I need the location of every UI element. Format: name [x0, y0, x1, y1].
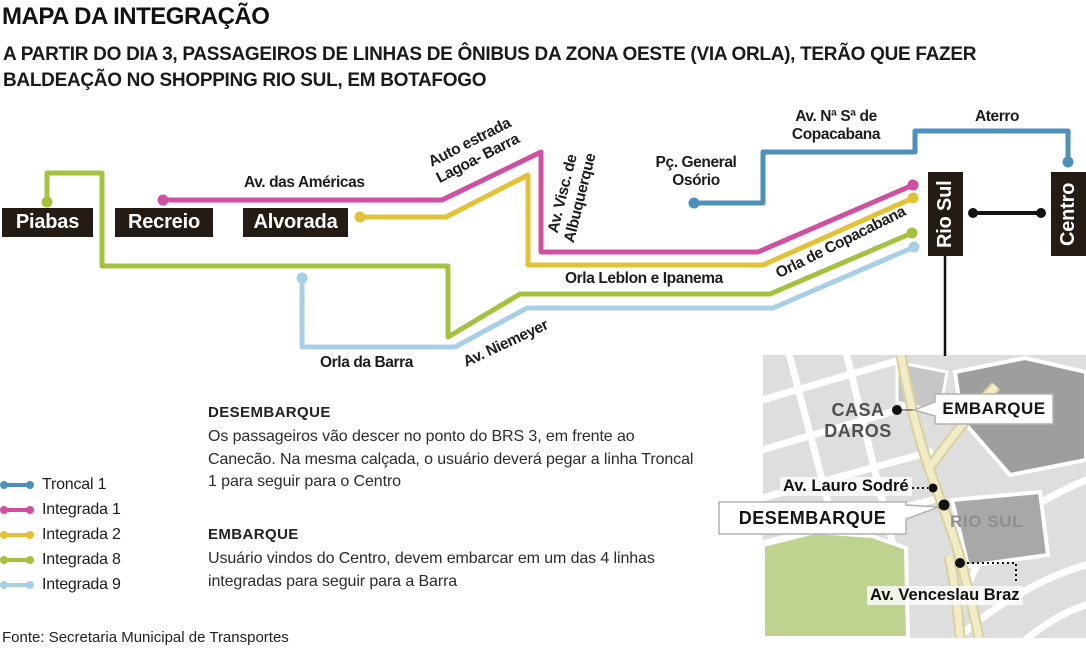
station-rio-sul: Rio Sul: [928, 172, 963, 256]
label-orla-da-barra: Orla da Barra: [320, 354, 413, 372]
map-label-av-venceslau-braz: Av. Venceslau Braz: [867, 586, 1023, 605]
route-integrada1: [163, 152, 913, 252]
desembarque-map-dot: [939, 500, 950, 511]
route-troncal1: [694, 131, 1068, 203]
legend-label-integrada9: Integrada 9: [42, 576, 121, 594]
map-label-av-lauro-sodre: Av. Lauro Sodré: [780, 477, 912, 496]
map-park: [763, 532, 908, 638]
label-pc-osorio-line1: Pç. General: [656, 154, 737, 172]
legend-item-troncal1: Troncal 1: [2, 477, 121, 493]
venceslau-dot: [955, 558, 965, 568]
label-aterro: Aterro: [975, 108, 1019, 126]
label-av-ns-line2: Copacabana: [792, 126, 880, 144]
station-centro: Centro: [1051, 172, 1086, 256]
legend-item-integrada9: Integrada 9: [2, 577, 121, 593]
legend-marker-troncal1: [2, 483, 32, 487]
page-title: MAPA DA INTEGRAÇÃO: [2, 3, 269, 31]
map-label-rio-sul-area: RIO SUL: [950, 512, 1023, 532]
casa-daros-line2: DAROS: [824, 421, 892, 442]
embarque-title: EMBARQUE: [208, 526, 299, 543]
label-av-ns-copacabana: Av. Nª Sª de Copacabana: [792, 108, 880, 144]
legend-label-integrada1: Integrada 1: [42, 501, 121, 519]
label-av-ns-line1: Av. Nª Sª de: [792, 108, 880, 126]
legend-item-integrada8: Integrada 8: [2, 552, 121, 568]
embarque-callout-label: EMBARQUE: [935, 394, 1053, 424]
desembarque-callout-label: DESEMBARQUE: [719, 502, 906, 534]
label-av-das-americas: Av. das Américas: [244, 174, 365, 192]
casa-daros-line1: CASA: [824, 400, 892, 421]
legend-marker-integrada8: [2, 558, 32, 562]
legend-marker-integrada2: [2, 533, 32, 537]
legend: Troncal 1 Integrada 1 Integrada 2 Integr…: [2, 477, 121, 593]
legend-item-integrada2: Integrada 2: [2, 527, 121, 543]
riosul-centro-connector: [968, 208, 1046, 218]
label-pc-osorio-line2: Osório: [656, 172, 737, 190]
embarque-body: Usuário vindos do Centro, devem embarcar…: [208, 548, 696, 593]
legend-marker-integrada1: [2, 508, 32, 512]
station-recreio: Recreio: [115, 208, 213, 237]
station-piabas: Piabas: [2, 208, 93, 237]
embarque-map-dot: [892, 405, 902, 415]
infographic: MAPA DA INTEGRAÇÃO A PARTIR DO DIA 3, PA…: [0, 0, 1086, 652]
source-credit: Fonte: Secretaria Municipal de Transport…: [2, 629, 289, 646]
legend-label-troncal1: Troncal 1: [42, 476, 106, 494]
legend-item-integrada1: Integrada 1: [2, 502, 121, 518]
desembarque-title: DESEMBARQUE: [208, 404, 331, 421]
page-subtitle: A PARTIR DO DIA 3, PASSAGEIROS DE LINHAS…: [3, 42, 1008, 94]
legend-marker-integrada9: [2, 583, 32, 587]
legend-label-integrada8: Integrada 8: [42, 551, 121, 569]
desembarque-body: Os passageiros vão descer no ponto do BR…: [208, 426, 696, 494]
station-alvorada: Alvorada: [243, 208, 348, 237]
lauro-sodre-dot: [929, 484, 938, 493]
label-pc-general-osorio: Pç. General Osório: [656, 154, 737, 190]
map-label-casa-daros: CASA DAROS: [824, 400, 892, 442]
legend-label-integrada2: Integrada 2: [42, 526, 121, 544]
label-orla-leblon-ipanema: Orla Leblon e Ipanema: [565, 270, 723, 288]
